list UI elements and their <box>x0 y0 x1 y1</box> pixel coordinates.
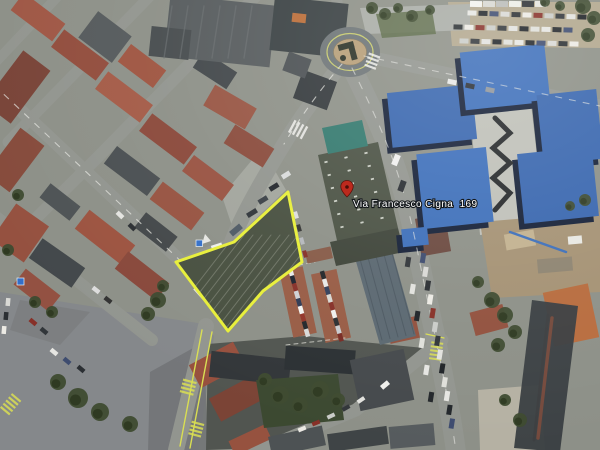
satellite-image: Via Francesco Cigna 169 <box>0 0 600 450</box>
pin-center-dot <box>345 185 349 189</box>
atmospheric-haze <box>0 0 600 450</box>
address-label: Via Francesco Cigna 169 <box>353 199 478 210</box>
